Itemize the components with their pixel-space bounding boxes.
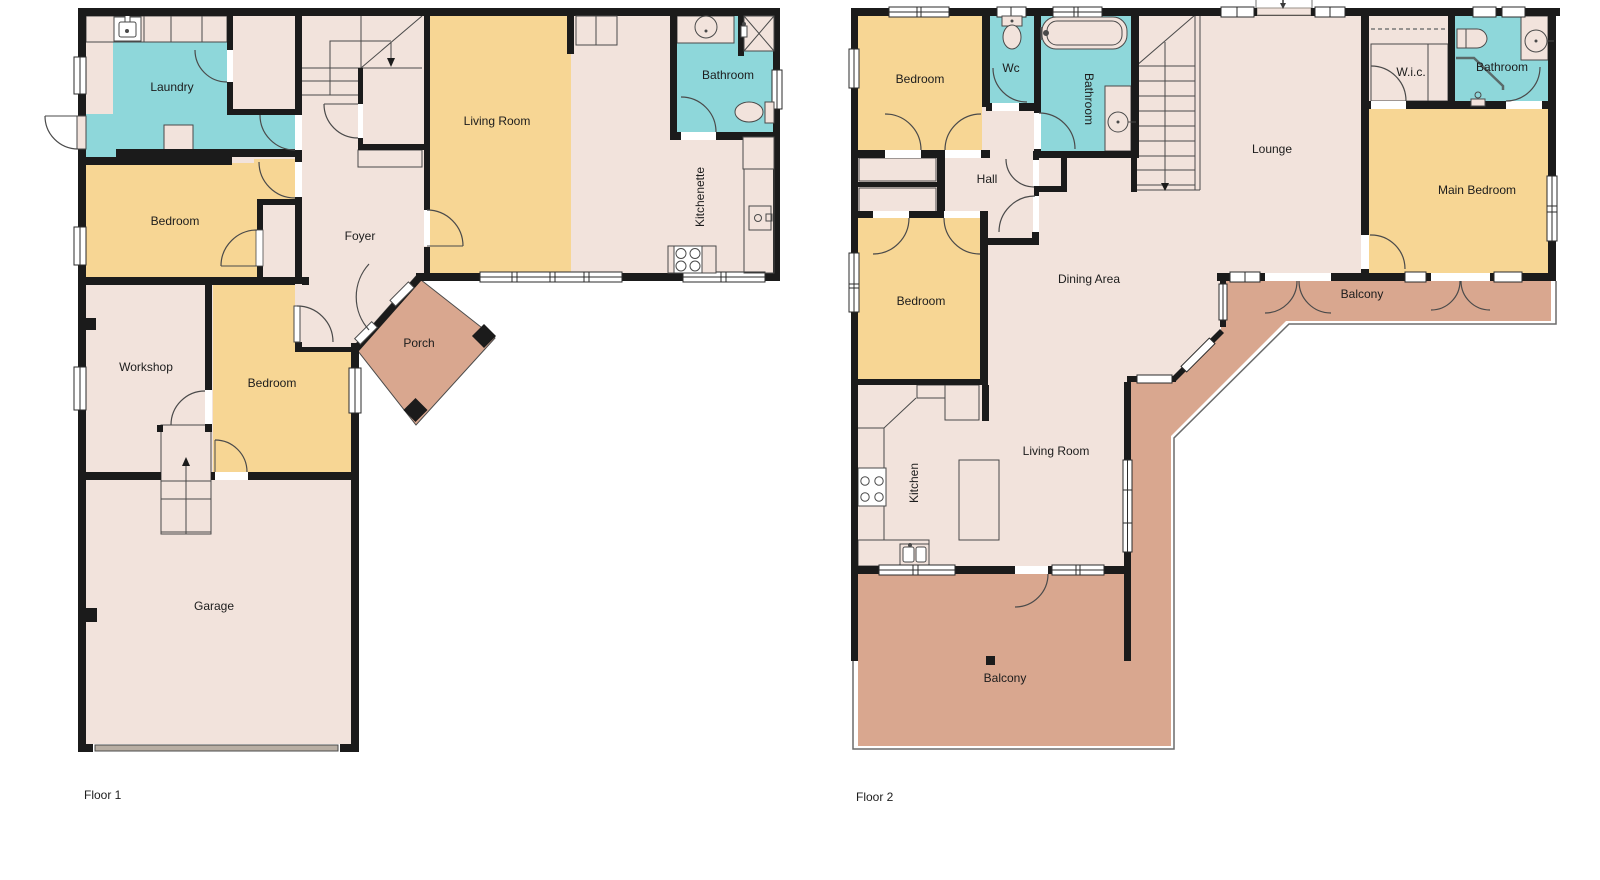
svg-text:Porch: Porch — [403, 336, 434, 350]
svg-text:Kitchen: Kitchen — [907, 463, 921, 503]
svg-text:Floor 2: Floor 2 — [856, 790, 894, 804]
svg-text:Main Bedroom: Main Bedroom — [1438, 183, 1516, 197]
svg-text:Bathroom: Bathroom — [702, 68, 754, 82]
svg-text:Garage: Garage — [194, 599, 234, 613]
svg-text:Bedroom: Bedroom — [151, 214, 200, 228]
svg-text:Dining Area: Dining Area — [1058, 272, 1120, 286]
svg-text:Floor 1: Floor 1 — [84, 788, 122, 802]
svg-text:Lounge: Lounge — [1252, 142, 1292, 156]
svg-text:Bedroom: Bedroom — [248, 376, 297, 390]
svg-text:Bathroom: Bathroom — [1082, 73, 1096, 125]
svg-text:Workshop: Workshop — [119, 360, 173, 374]
svg-text:W.i.c.: W.i.c. — [1396, 65, 1425, 79]
svg-text:Laundry: Laundry — [150, 80, 193, 94]
svg-text:Foyer: Foyer — [345, 229, 376, 243]
svg-text:Kitchenette: Kitchenette — [693, 167, 707, 227]
svg-text:Living Room: Living Room — [1023, 444, 1090, 458]
svg-text:Balcony: Balcony — [1341, 287, 1384, 301]
svg-text:Hall: Hall — [977, 172, 998, 186]
svg-text:Balcony: Balcony — [984, 671, 1027, 685]
svg-text:Living Room: Living Room — [464, 114, 531, 128]
svg-text:Bathroom: Bathroom — [1476, 60, 1528, 74]
svg-text:Bedroom: Bedroom — [897, 294, 946, 308]
svg-text:Wc: Wc — [1002, 61, 1019, 75]
svg-text:Bedroom: Bedroom — [896, 72, 945, 86]
